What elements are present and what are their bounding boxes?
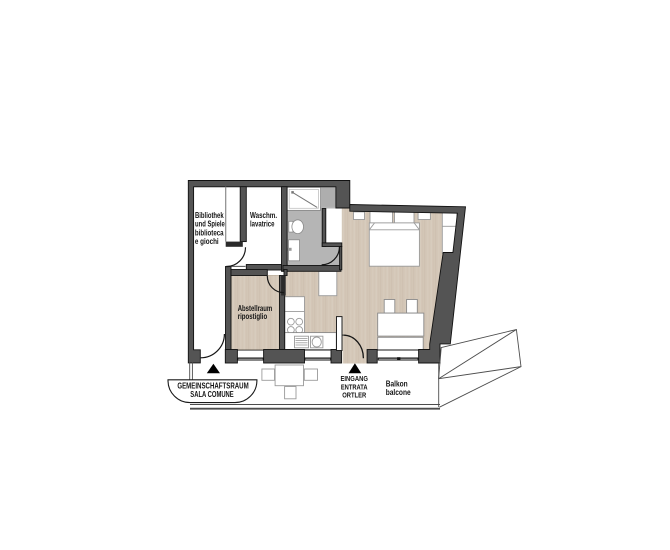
svg-text:EINGANG: EINGANG [341,376,368,384]
svg-text:lavatrice: lavatrice [250,220,275,229]
svg-text:balcone: balcone [386,387,411,397]
svg-text:ripostiglio: ripostiglio [238,312,268,321]
svg-text:e giochi: e giochi [195,236,219,246]
svg-text:ENTRATA: ENTRATA [341,384,368,392]
svg-text:SALA COMUNE: SALA COMUNE [190,391,234,399]
svg-text:Bibliothek: Bibliothek [195,212,224,220]
svg-text:GEMEINSCHAFTSRAUM: GEMEINSCHAFTSRAUM [177,382,248,391]
svg-text:ORTLER: ORTLER [342,392,366,400]
